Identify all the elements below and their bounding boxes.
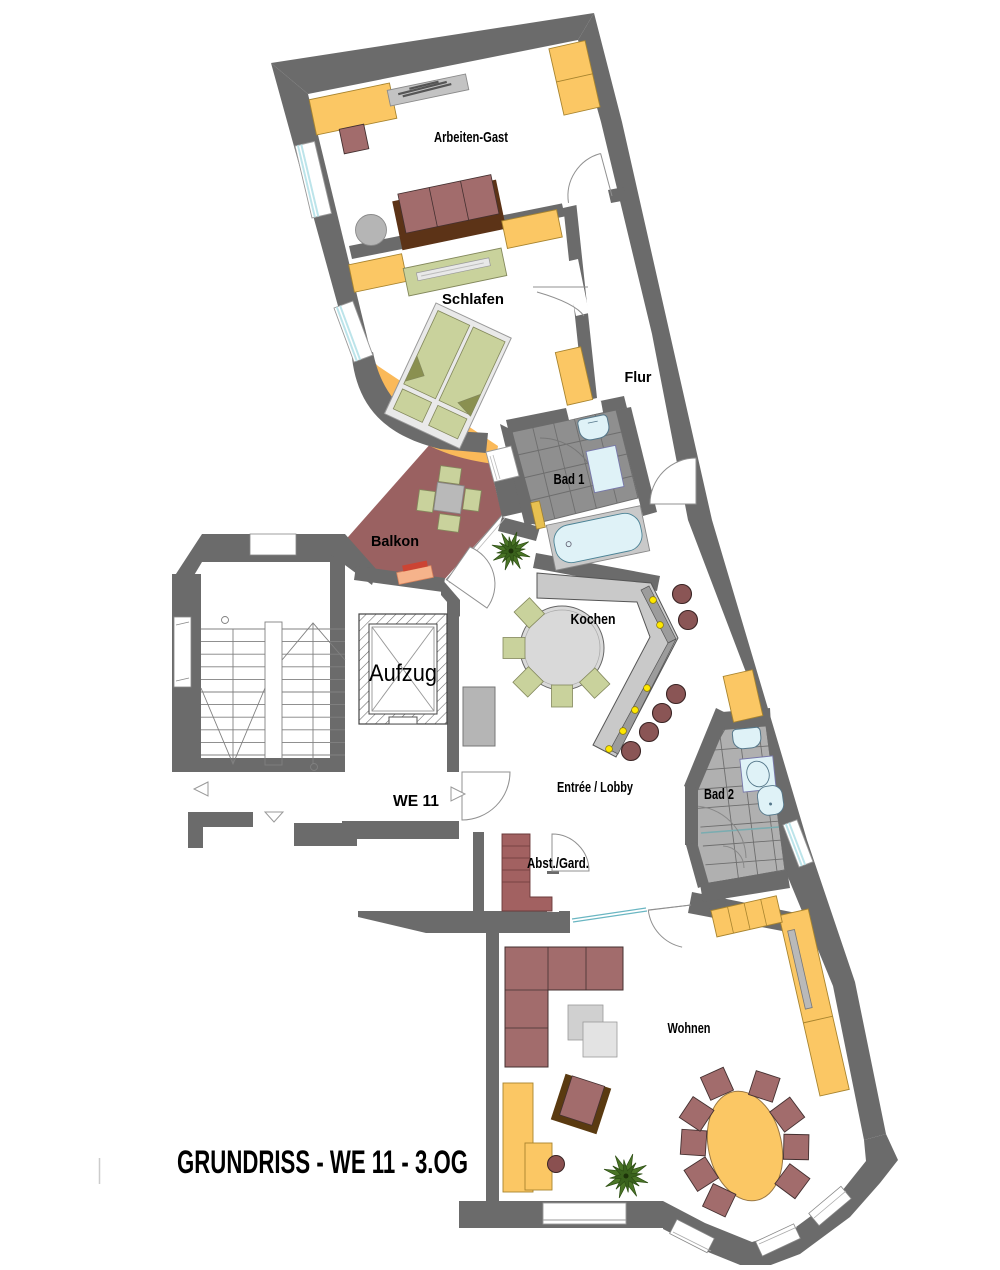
svg-text:Wohnen: Wohnen bbox=[668, 1020, 711, 1037]
svg-text:Balkon: Balkon bbox=[371, 533, 419, 550]
svg-text:Bad 1: Bad 1 bbox=[554, 471, 585, 488]
svg-text:Bad 2: Bad 2 bbox=[704, 786, 734, 803]
svg-text:WE 11: WE 11 bbox=[393, 793, 439, 810]
svg-text:Flur: Flur bbox=[625, 369, 652, 386]
svg-text:Kochen: Kochen bbox=[571, 611, 616, 628]
svg-text:Arbeiten-Gast: Arbeiten-Gast bbox=[434, 129, 508, 146]
svg-text:Schlafen: Schlafen bbox=[442, 291, 504, 308]
svg-text:Aufzug: Aufzug bbox=[369, 660, 437, 687]
svg-text:Entrée / Lobby: Entrée / Lobby bbox=[557, 779, 633, 796]
svg-text:Abst./Gard.: Abst./Gard. bbox=[527, 855, 589, 872]
svg-text:GRUNDRISS - WE 11 - 3.OG: GRUNDRISS - WE 11 - 3.OG bbox=[177, 1144, 468, 1180]
